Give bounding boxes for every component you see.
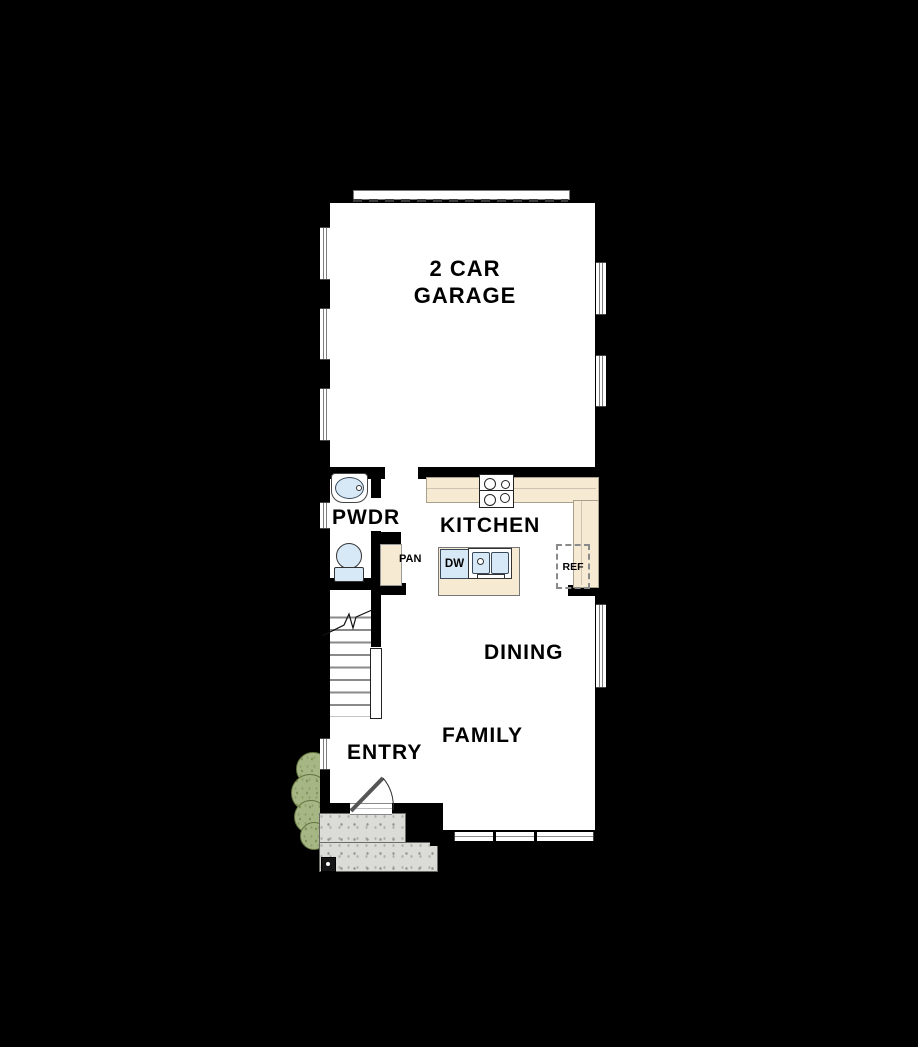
wall-pwdr-east-upper xyxy=(371,467,381,498)
stair-handrail xyxy=(370,648,382,719)
post-dot xyxy=(326,862,330,866)
cooktop-divider xyxy=(480,490,513,491)
garage-window-left-3 xyxy=(320,388,330,441)
refrigerator-label: REF xyxy=(563,561,584,573)
burner xyxy=(500,493,510,503)
faucet-icon xyxy=(477,558,484,565)
entry-window xyxy=(320,738,330,770)
dishwasher-label: DW xyxy=(445,558,464,570)
sink-basin-right xyxy=(491,552,509,574)
kitchen-room-label: KITCHEN xyxy=(440,514,540,538)
burner xyxy=(501,480,510,489)
garage-window-left-1 xyxy=(320,227,330,280)
family-window-band xyxy=(454,832,594,841)
pwdr-sink xyxy=(331,473,368,503)
powder-room-label: PWDR xyxy=(332,506,400,530)
family-window-mullion xyxy=(534,831,537,842)
family-room-label: FAMILY xyxy=(442,724,523,748)
wall-pantry-north xyxy=(371,532,401,544)
porch-slab-lower xyxy=(319,842,438,872)
cooktop xyxy=(479,474,514,508)
pantry-label: PAN xyxy=(399,553,421,565)
floor-plan: DW REF 2 CAR GARAGE PWDR KITCHEN PAN DIN… xyxy=(0,0,918,1047)
garage-window-right-2 xyxy=(596,355,606,407)
dishwasher: DW xyxy=(440,549,469,579)
dining-room-label: DINING xyxy=(484,641,564,665)
porch-slab-upper xyxy=(319,813,406,845)
faucet-icon xyxy=(356,485,362,491)
stair-break-line-icon xyxy=(320,600,380,642)
burner xyxy=(484,478,496,490)
dining-window xyxy=(596,604,606,688)
pantry-shelf xyxy=(380,544,402,586)
porch-post xyxy=(321,857,336,872)
entry-room-label: ENTRY xyxy=(347,741,422,765)
garage-door-header xyxy=(353,199,568,202)
garage-room-label: 2 CAR GARAGE xyxy=(404,255,526,309)
sink-front-lip xyxy=(477,574,505,579)
toilet-tank xyxy=(334,567,364,582)
toilet-bowl xyxy=(336,543,362,569)
pwdr-window xyxy=(320,502,330,529)
garage-window-left-2 xyxy=(320,308,330,360)
entry-door-swing-icon xyxy=(345,770,400,815)
kitchen-sink xyxy=(468,548,512,579)
burner xyxy=(484,494,496,506)
garage-window-right-1 xyxy=(596,262,606,315)
refrigerator: REF xyxy=(556,544,590,589)
family-window-mullion xyxy=(493,831,496,842)
garage-floor xyxy=(330,197,595,468)
